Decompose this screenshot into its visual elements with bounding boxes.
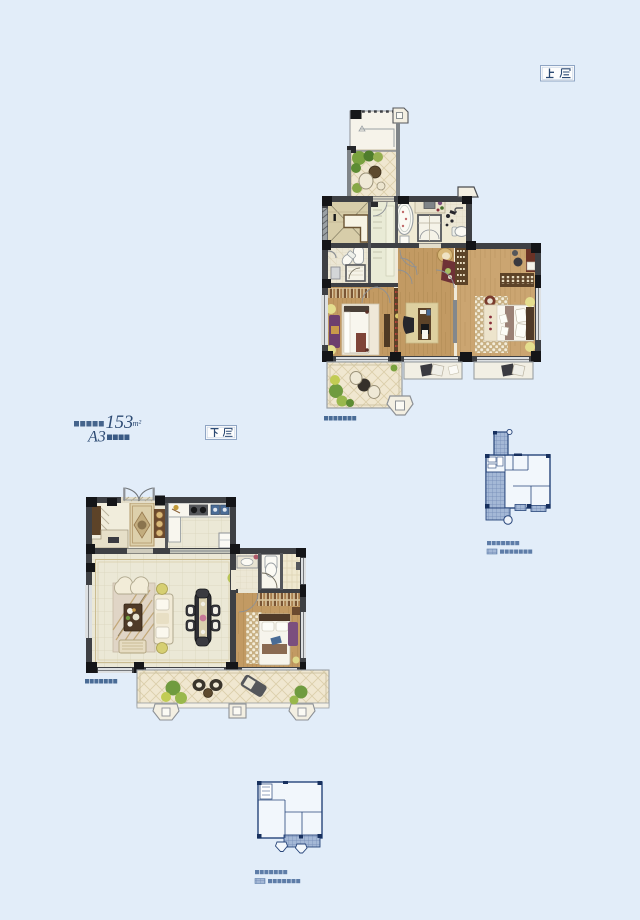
svg-text:m²: m² (133, 418, 142, 428)
svg-text:153: 153 (106, 413, 134, 433)
svg-text:A3: A3 (87, 429, 106, 446)
